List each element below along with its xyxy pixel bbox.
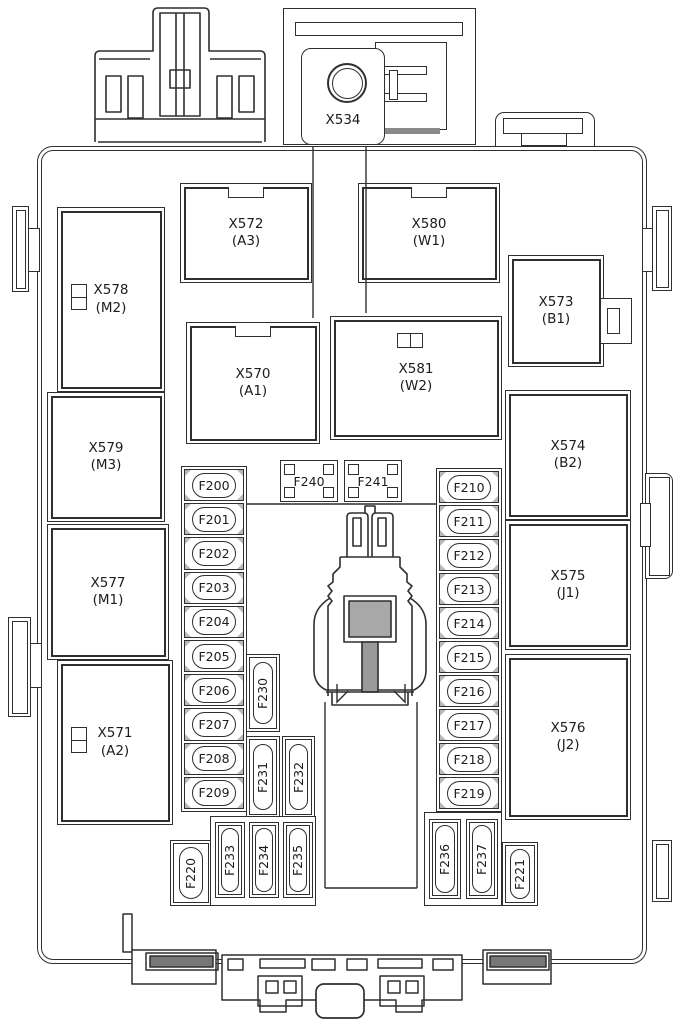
fuse-f217: F217 (439, 709, 499, 741)
fuse-label: F218 (447, 747, 491, 772)
fuse-f215: F215 (439, 641, 499, 673)
fuse-label: F230 (256, 677, 271, 708)
connector-x579: X579(M3) (47, 392, 165, 522)
fuse-f214: F214 (439, 607, 499, 639)
connector-x578: X578(M2) (57, 207, 165, 392)
connector-x572: X572(A3) (180, 183, 312, 283)
connector-x580: X580(W1) (358, 183, 500, 283)
fuse-label: F205 (192, 644, 236, 669)
top-edge-bracket-slot (503, 118, 583, 134)
connector-sub: (A1) (239, 385, 267, 399)
x534-bolt-hole-icon (327, 63, 367, 103)
fuse-label: F208 (192, 746, 236, 771)
mount-tab-left-top-detail (28, 228, 40, 272)
connector-code: X579 (88, 442, 123, 456)
fuse-label: F217 (447, 713, 491, 738)
mount-tab-left-bottom-detail (30, 643, 42, 688)
fuse-pill: F221 (510, 849, 530, 899)
fuse-f235: F235 (283, 822, 313, 898)
connector-code: X570 (235, 368, 270, 382)
fuse-label: F204 (192, 609, 236, 634)
x571-pin-detail (71, 727, 87, 753)
fuse-f205: F205 (184, 640, 244, 672)
fuse-f220: F220 (170, 840, 212, 906)
top-edge-bracket-tab (521, 133, 567, 146)
x573-side-stub-slot (607, 308, 620, 334)
connector-code: X574 (550, 440, 585, 454)
fuse-label: F213 (447, 577, 491, 602)
x570-top-notch (235, 326, 271, 337)
fuse-label: F200 (192, 473, 236, 498)
fuse-label: F216 (447, 679, 491, 704)
fuse-pill: F233 (221, 828, 239, 892)
fuse-f237: F237 (466, 819, 498, 899)
connector-sub: (M2) (96, 302, 127, 316)
fuse-f200: F200 (184, 469, 244, 501)
fuse-label: F212 (447, 543, 491, 568)
mount-tab-left-bottom (8, 617, 31, 717)
connector-code: X571 (97, 727, 132, 741)
fuse-label: F237 (475, 843, 490, 874)
fuse-f210: F210 (439, 471, 499, 503)
fuse-label: F211 (447, 509, 491, 534)
connector-sub: (A2) (101, 745, 129, 759)
connector-sub: (W1) (413, 235, 445, 249)
fuse-pill: F236 (435, 825, 455, 893)
connector-sub: (W2) (400, 380, 432, 394)
connector-x576: X576(J2) (505, 654, 631, 820)
top-left-connector (95, 8, 265, 142)
fuse-label: F234 (257, 844, 272, 875)
fuse-f207: F207 (184, 708, 244, 740)
fuse-label: F206 (192, 678, 236, 703)
connector-x574: X574(B2) (505, 390, 631, 520)
connector-x581: X581(W2) (330, 316, 502, 440)
fuse-f234: F234 (249, 822, 279, 898)
x578-pin-detail (71, 284, 87, 310)
fuse-label: F207 (192, 712, 236, 737)
connector-x577: X577(M1) (47, 524, 169, 660)
connector-x570: X570(A1) (186, 322, 320, 444)
connector-code: X573 (538, 296, 573, 310)
connector-code: X577 (90, 577, 125, 591)
x572-top-notch (228, 187, 264, 198)
fuse-f236: F236 (429, 819, 461, 899)
fuse-f221: F221 (502, 842, 538, 906)
fuse-label: F215 (447, 645, 491, 670)
connector-code: X575 (550, 570, 585, 584)
mount-tab-right-middle-detail (640, 503, 651, 547)
fuse-f233: F233 (215, 822, 245, 898)
connector-x573: X573(B1) (508, 255, 604, 367)
connector-code: X580 (411, 218, 446, 232)
fuse-f216: F216 (439, 675, 499, 707)
fuse-f231: F231 (246, 736, 280, 818)
fuse-column-left: F200 F201 F202 F203 F204 F205 F206 F207 … (181, 466, 247, 812)
mount-tab-right-bottom (652, 840, 672, 902)
connector-x575: X575(J1) (505, 520, 631, 650)
connector-code: X576 (550, 722, 585, 736)
connector-sub: (B2) (554, 457, 582, 471)
fuse-f230: F230 (246, 654, 280, 732)
fuse-f213: F213 (439, 573, 499, 605)
fuse-pill: F231 (253, 744, 273, 810)
relay-label: F240 (281, 461, 337, 501)
fuse-label: F202 (192, 541, 236, 566)
pinbox-pin-bridge (389, 70, 398, 100)
fuse-label: F235 (291, 844, 306, 875)
fuse-f218: F218 (439, 743, 499, 775)
x580-top-notch (411, 187, 447, 198)
fuse-f203: F203 (184, 572, 244, 604)
fuse-label: F220 (184, 857, 199, 888)
mount-tab-right-top (652, 206, 672, 291)
fuse-label: F203 (192, 575, 236, 600)
fuse-f204: F204 (184, 606, 244, 638)
fuse-f219: F219 (439, 777, 499, 809)
connector-sub: (B1) (542, 313, 570, 327)
connector-sub: (M3) (91, 459, 122, 473)
fuse-label: F231 (256, 761, 271, 792)
fuse-label: F232 (291, 761, 306, 792)
fuse-box-diagram: X534 X572(A3) X580(W1) X578(M2) X573(B1)… (0, 0, 681, 1024)
fuse-label: F221 (513, 858, 528, 889)
connector-sub: (M1) (93, 594, 124, 608)
connector-sub: (J2) (556, 739, 579, 753)
connector-sub: (A3) (232, 235, 260, 249)
connector-x571: X571(A2) (57, 660, 173, 825)
fuse-f209: F209 (184, 777, 244, 809)
fuse-label: F201 (192, 507, 236, 532)
fuse-f211: F211 (439, 505, 499, 537)
connector-x534-label: X534 (301, 112, 385, 128)
mount-tab-left-top (12, 206, 29, 292)
fuse-f201: F201 (184, 503, 244, 535)
relay-slot-f241: F241 (344, 460, 402, 502)
fuse-pill: F234 (255, 828, 273, 892)
mount-tab-right-top-detail (642, 228, 653, 272)
connector-code: X581 (398, 363, 433, 377)
fuse-f212: F212 (439, 539, 499, 571)
connector-sub: (J1) (556, 587, 579, 601)
fuse-pill: F235 (289, 828, 307, 892)
fuse-pill: F220 (179, 847, 203, 899)
fuse-pill: F237 (472, 825, 492, 893)
pinbox-base-shading (383, 128, 440, 134)
x581-key-detail (397, 333, 423, 348)
fuse-pill: F230 (253, 662, 273, 724)
fuse-label: F219 (447, 781, 491, 806)
fuse-label: F233 (223, 844, 238, 875)
fuse-label: F210 (447, 475, 491, 500)
fuse-f208: F208 (184, 743, 244, 775)
connector-code: X578 (93, 284, 128, 298)
bottom-right-fuse-group: F236 F237 (424, 812, 502, 906)
top-connector-rail (295, 22, 463, 36)
fuse-pill: F232 (289, 744, 308, 810)
relay-label: F241 (345, 461, 401, 501)
fuse-label: F236 (438, 843, 453, 874)
relay-slot-f240: F240 (280, 460, 338, 502)
fuse-f232: F232 (282, 736, 315, 818)
fuse-f206: F206 (184, 674, 244, 706)
top-connector-pinbox (375, 42, 447, 130)
fuse-label: F209 (192, 780, 236, 805)
fuse-label: F214 (447, 611, 491, 636)
bottom-left-fuse-group: F233 F234 F235 (210, 816, 316, 906)
fuse-column-right: F210 F211 F212 F213 F214 F215 F216 F217 … (436, 468, 502, 812)
fuse-f202: F202 (184, 537, 244, 569)
connector-code: X572 (228, 218, 263, 232)
